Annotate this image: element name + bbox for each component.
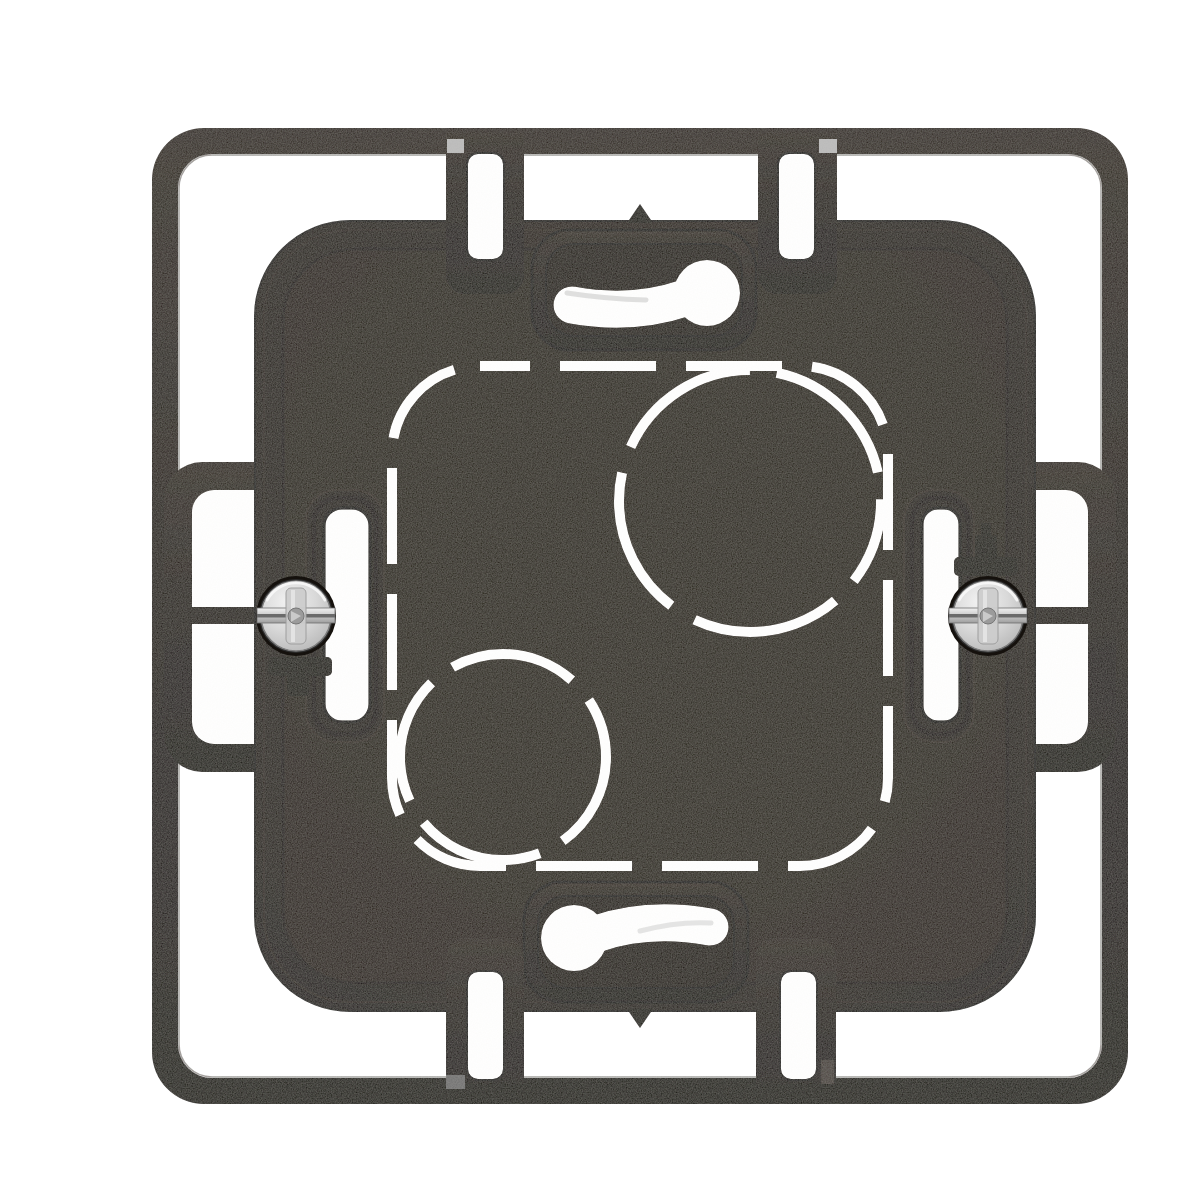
box-body (255, 204, 1035, 1028)
fixing-screw-left (256, 576, 336, 656)
mold-tick-bottom-left (446, 1075, 465, 1089)
tab-slot-bottom-right (780, 971, 817, 1080)
tab-slot-top-left (467, 153, 504, 260)
fixing-screw-right (948, 576, 1028, 656)
mold-tick-bottom-right (821, 1060, 834, 1084)
product-photo: Front view product photo of a black sing… (40, 16, 1200, 1200)
mold-tick-top-right (819, 139, 837, 153)
product-photo-svg (40, 16, 1200, 1200)
mold-tick-top-left (447, 139, 464, 153)
tab-slot-bottom-left (467, 971, 504, 1080)
keyhole-recess-bottom (524, 882, 748, 1002)
tab-slot-top-right (778, 153, 815, 260)
keyhole-recess-top (532, 230, 756, 350)
